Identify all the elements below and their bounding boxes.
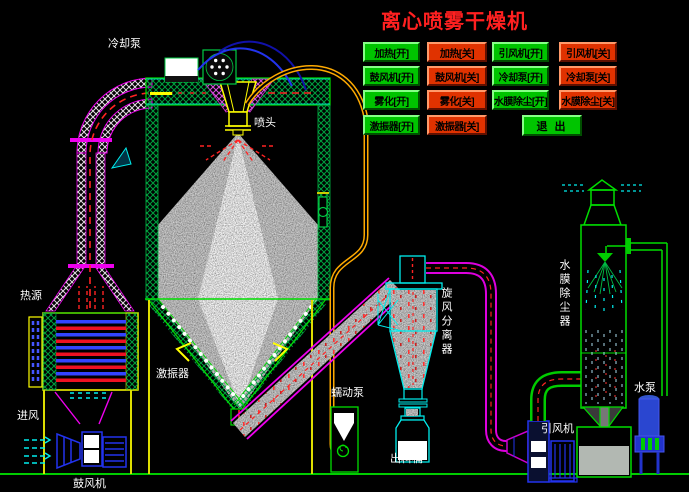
heater-on-button[interactable]: 加热[开] bbox=[363, 42, 420, 62]
atomizer-off-button[interactable]: 雾化[关] bbox=[427, 90, 487, 110]
vibrator-off-button[interactable]: 激振器[关] bbox=[427, 115, 487, 135]
scrubber-tower bbox=[562, 180, 643, 477]
blower-on-button[interactable]: 鼓风机[开] bbox=[363, 66, 420, 86]
induced-fan-on-button[interactable]: 引风机[开] bbox=[492, 42, 549, 62]
blower-label: 鼓风机 bbox=[73, 478, 106, 490]
water-pump-unit bbox=[626, 238, 667, 474]
cooling-pump-on-button[interactable]: 冷却泵[开] bbox=[492, 66, 549, 86]
hmi-screen: 离心喷雾干燥机 加热[开] 加热[关] 引风机[开] 引风机[关] 鼓风机[开]… bbox=[0, 0, 689, 492]
air-inlet-arrows bbox=[24, 437, 50, 463]
scrubber-on-button[interactable]: 水膜除尘[开] bbox=[492, 90, 549, 110]
water-film-dust-collector-label: 水膜除尘器 bbox=[558, 259, 570, 329]
fan-to-scrubber-pipe bbox=[538, 379, 581, 421]
vibrator-on-button[interactable]: 激振器[开] bbox=[363, 115, 420, 135]
exit-button[interactable]: 退 出 bbox=[522, 115, 582, 136]
cooling-pump-label: 冷却泵 bbox=[108, 38, 141, 50]
peristaltic-pump bbox=[331, 407, 358, 472]
heat-exchanger bbox=[29, 313, 138, 474]
vibrator-label: 激振器 bbox=[156, 368, 189, 380]
blower-off-button[interactable]: 鼓风机[关] bbox=[427, 66, 487, 86]
cooling-pump-off-button[interactable]: 冷却泵[关] bbox=[559, 66, 617, 86]
scrubber-off-button[interactable]: 水膜除尘[关] bbox=[559, 90, 617, 110]
discharge-barrel-label: 出料桶 bbox=[390, 453, 423, 465]
peristaltic-pump-label: 蠕动泵 bbox=[331, 387, 364, 399]
drying-chamber bbox=[112, 78, 331, 474]
air-inlet-label: 进风 bbox=[17, 410, 39, 422]
page-title: 离心喷雾干燥机 bbox=[381, 5, 528, 34]
heat-source-label: 热源 bbox=[20, 290, 42, 302]
induced-fan-off-button[interactable]: 引风机[关] bbox=[559, 42, 617, 62]
induced-draft-fan-label: 引风机 bbox=[541, 423, 574, 435]
water-pump-label: 水泵 bbox=[634, 382, 656, 394]
atomizer-on-button[interactable]: 雾化[开] bbox=[363, 90, 420, 110]
heater-off-button[interactable]: 加热[关] bbox=[427, 42, 487, 62]
cyclone-separator-label: 旋风分离器 bbox=[440, 287, 452, 357]
blower-fan bbox=[57, 432, 126, 468]
spray-head-label: 喷头 bbox=[254, 117, 276, 129]
